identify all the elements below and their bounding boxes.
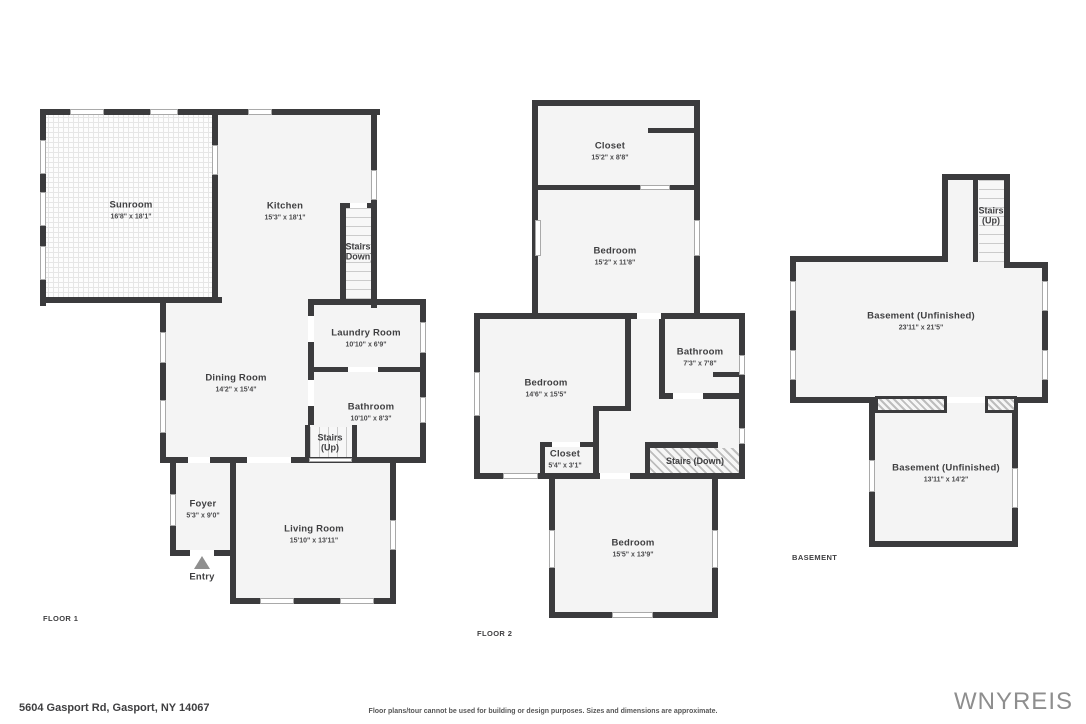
wall — [645, 442, 650, 475]
window — [420, 322, 426, 353]
room-name: Foyer — [186, 500, 219, 511]
room-dims: 15'5" x 13'9" — [611, 551, 654, 559]
room-name: Sunroom — [109, 201, 152, 212]
wall — [305, 425, 310, 457]
window — [503, 473, 538, 479]
wall — [352, 425, 357, 457]
window — [869, 460, 875, 492]
window — [371, 170, 377, 200]
room-name: Kitchen — [264, 202, 305, 213]
room-label-stairs-up-basement: Stairs (Up) — [978, 206, 1003, 227]
room-name: Dining Room — [205, 374, 266, 385]
window — [612, 612, 653, 618]
wall — [160, 297, 166, 463]
room-label-foyer: Foyer 5'3" x 9'0" — [186, 500, 219, 521]
room-dims: 5'3" x 9'0" — [186, 512, 219, 520]
room-name: Bathroom — [677, 348, 723, 359]
window — [535, 220, 541, 256]
window — [340, 598, 374, 604]
wnyreis-logo: WNYREIS — [954, 688, 1073, 716]
wall — [1004, 174, 1010, 268]
window — [739, 428, 745, 444]
wall — [645, 442, 718, 448]
wall — [790, 256, 948, 262]
room-label-bathroom-f2: Bathroom 7'3" x 7'8" — [677, 348, 723, 369]
room-label-bedroom-mid: Bedroom 14'6" x 15'5" — [524, 379, 567, 400]
door-opening — [673, 393, 703, 399]
wall — [648, 128, 694, 133]
room-label-stairs-down: Stairs (Down) — [343, 242, 374, 263]
door-opening — [308, 316, 314, 342]
wall — [212, 112, 218, 303]
wall — [532, 100, 538, 316]
stairs-label-line2: (Up) — [317, 443, 342, 453]
floor2-tag: FLOOR 2 — [477, 629, 512, 638]
floor1-tag: FLOOR 1 — [43, 614, 78, 623]
door-opening — [247, 457, 291, 463]
window — [40, 246, 46, 280]
window — [212, 145, 218, 175]
room-name: Bedroom — [611, 539, 654, 550]
wall — [625, 319, 631, 411]
room-dims: 7'3" x 7'8" — [677, 360, 723, 368]
wall — [308, 299, 426, 305]
wall — [371, 109, 377, 308]
door-opening — [552, 442, 580, 447]
window — [170, 494, 176, 526]
wall — [230, 458, 236, 604]
door-opening — [308, 380, 314, 406]
room-dims: 14'2" x 15'4" — [205, 386, 266, 394]
unexcavated-hatch — [985, 396, 1017, 413]
window — [260, 598, 294, 604]
room-dims: 23'11" x 21'5" — [867, 324, 975, 332]
floor2-top-block-floor — [535, 103, 697, 318]
wall — [532, 100, 700, 106]
entry-text: Entry — [189, 573, 214, 584]
door-opening — [947, 397, 985, 403]
room-dims: 15'2" x 11'8" — [593, 259, 636, 267]
room-dims: 15'2" x 8'8" — [591, 154, 628, 162]
room-name: Bedroom — [593, 247, 636, 258]
room-label-basement-upper: Basement (Unfinished) 23'11" x 21'5" — [867, 312, 975, 333]
window — [420, 397, 426, 423]
room-label-bedroom-top: Bedroom 15'2" x 11'8" — [593, 247, 636, 268]
room-name: Living Room — [284, 525, 344, 536]
wall — [532, 185, 700, 190]
wall — [694, 100, 700, 316]
window — [694, 220, 700, 256]
room-name: Basement (Unfinished) — [867, 312, 975, 323]
door-opening — [348, 367, 378, 372]
window — [40, 140, 46, 174]
stair-landing — [309, 458, 352, 462]
room-label-sunroom: Sunroom 16'8" x 18'1" — [109, 201, 152, 222]
disclaimer-text: Floor plans/tour cannot be used for buil… — [0, 708, 1086, 715]
stairs-label-line1: Stairs — [343, 242, 374, 252]
room-label-stairs-down-f2: Stairs (Down) — [666, 456, 724, 466]
room-dims: 10'10" x 8'3" — [348, 415, 394, 423]
window — [248, 109, 272, 115]
door-opening — [637, 313, 661, 319]
door-opening — [350, 203, 367, 208]
window — [1012, 468, 1018, 508]
door-opening — [188, 457, 210, 463]
window — [40, 192, 46, 226]
room-label-stairs-up: Stairs (Up) — [317, 433, 342, 454]
entry-arrow — [194, 556, 210, 569]
room-name: Stairs (Down) — [666, 456, 724, 466]
room-dims: 15'10" x 13'11" — [284, 537, 344, 545]
door-opening — [600, 473, 630, 479]
wall — [40, 297, 222, 303]
room-name: Closet — [591, 142, 628, 153]
room-label-bathroom-f1: Bathroom 10'10" x 8'3" — [348, 403, 394, 424]
window — [150, 109, 178, 115]
stairs-label-line1: Stairs — [317, 433, 342, 443]
window — [70, 109, 104, 115]
wall — [540, 442, 545, 479]
room-label-closet-top: Closet 15'2" x 8'8" — [591, 142, 628, 163]
stairs-label-line2: (Up) — [978, 216, 1003, 226]
room-name: Basement (Unfinished) — [892, 464, 1000, 475]
window — [739, 355, 745, 375]
room-dims: 14'6" x 15'5" — [524, 391, 567, 399]
window — [160, 332, 166, 363]
room-label-kitchen: Kitchen 15'3" x 18'1" — [264, 202, 305, 223]
basement-tag: BASEMENT — [792, 553, 837, 562]
wall — [474, 313, 745, 319]
wall — [973, 180, 978, 262]
window — [712, 530, 718, 568]
room-dims: 13'11" x 14'2" — [892, 476, 1000, 484]
room-name: Laundry Room — [331, 329, 400, 340]
room-dims: 15'3" x 18'1" — [264, 214, 305, 222]
room-dims: 5'4" x 3'1" — [548, 462, 581, 470]
room-label-closet-mid: Closet 5'4" x 3'1" — [548, 450, 581, 471]
window — [1042, 281, 1048, 311]
room-dims: 16'8" x 18'1" — [109, 213, 152, 221]
stairs-label-line1: Stairs — [978, 206, 1003, 216]
wall — [869, 541, 1018, 547]
room-label-bedroom-bottom: Bedroom 15'5" x 13'9" — [611, 539, 654, 560]
floor-plan-page: Sunroom 16'8" x 18'1" Kitchen 15'3" x 18… — [0, 0, 1086, 724]
room-name: Closet — [548, 450, 581, 461]
wall — [942, 174, 948, 262]
window — [549, 530, 555, 568]
entry-label: Entry — [189, 573, 214, 584]
window — [160, 400, 166, 433]
window — [790, 281, 796, 311]
unexcavated-hatch — [875, 396, 947, 413]
room-label-laundry: Laundry Room 10'10" x 6'9" — [331, 329, 400, 350]
room-name: Bedroom — [524, 379, 567, 390]
room-name: Bathroom — [348, 403, 394, 414]
window — [390, 520, 396, 550]
door-opening — [640, 185, 670, 190]
room-label-basement-lower: Basement (Unfinished) 13'11" x 14'2" — [892, 464, 1000, 485]
window — [1042, 350, 1048, 380]
room-label-dining: Dining Room 14'2" x 15'4" — [205, 374, 266, 395]
room-label-living: Living Room 15'10" x 13'11" — [284, 525, 344, 546]
wall — [790, 256, 796, 403]
window — [474, 372, 480, 416]
window — [790, 350, 796, 380]
wall — [659, 313, 665, 399]
stairs-label-line2: (Down) — [343, 252, 374, 262]
room-dims: 10'10" x 6'9" — [331, 341, 400, 349]
